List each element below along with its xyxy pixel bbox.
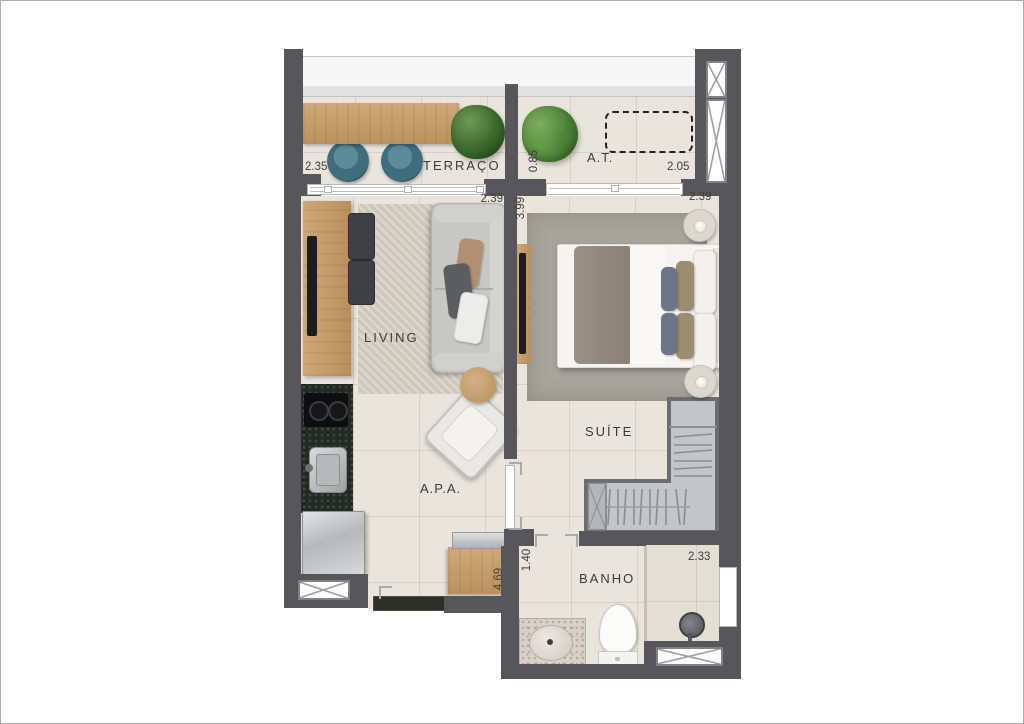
bed-pillow-blue [661, 313, 677, 355]
wall [284, 49, 303, 176]
shaft-vent-box [706, 99, 727, 183]
bed-blanket [574, 246, 630, 364]
wall [719, 194, 741, 546]
bed-pillow-blue [661, 267, 677, 311]
bed-pillow-white [693, 250, 716, 314]
dim-apa-height: 4.69 [494, 565, 506, 593]
balcony-railing-band [302, 56, 697, 87]
round-side-table [460, 367, 496, 403]
balcony-sill [302, 86, 695, 97]
dining-chair [348, 213, 375, 260]
shaft-vent-box [706, 61, 727, 98]
dim-at-height: 0.85 [529, 147, 541, 175]
shaft-vent-box [656, 647, 723, 666]
shower-window [719, 567, 737, 627]
nightstand-lamp [683, 209, 716, 242]
room-label-banho: BANHO [579, 572, 635, 585]
dim-terraco-width: 2.35 [305, 162, 327, 174]
terrace-plant-icon [451, 105, 505, 159]
nightstand-lamp [684, 365, 717, 398]
dim-suite-width: 2.39 [689, 192, 711, 204]
living-tv [307, 236, 317, 336]
bed-pillow-white [693, 313, 716, 371]
refrigerator [302, 511, 365, 575]
sink-basin [316, 454, 340, 486]
kitchen-sink [309, 447, 347, 493]
door-frame-mark [509, 462, 522, 475]
terrace-sliding-door [307, 184, 486, 195]
wall [504, 196, 517, 459]
room-label-suite: SUÍTE [585, 425, 633, 438]
suite-closet [584, 397, 721, 534]
burner [328, 401, 348, 421]
door-frame-mark [509, 517, 522, 530]
shower-drain-head [679, 612, 705, 638]
ac-condenser-dashed-outline [605, 111, 693, 153]
wall [505, 84, 518, 184]
bed-pillow-tan [676, 261, 694, 311]
dim-living-width: 2.39 [473, 194, 503, 206]
suite-window [546, 183, 683, 195]
floor-plan-canvas: TERRAÇO 2.35 A.T. 2.05 0.85 2.39 LIVING … [0, 0, 1024, 724]
dining-chair [348, 260, 375, 305]
sofa-armrest [434, 205, 504, 222]
bed-pillow-tan [676, 313, 694, 359]
room-label-apa: A.P.A. [420, 482, 461, 495]
room-label-living: LIVING [364, 331, 419, 344]
cooktop [304, 393, 348, 427]
sofa-armrest [434, 353, 504, 370]
toilet-flush-button [615, 657, 620, 661]
door-frame-mark [379, 586, 392, 599]
armchair-seat [439, 403, 500, 464]
dim-banho-height: 1.40 [522, 546, 534, 574]
terrace-stool [381, 140, 423, 182]
shower-partition [644, 546, 647, 642]
dim-suite-height: 3.99 [516, 194, 528, 222]
washer-appliance [452, 532, 506, 549]
terrace-stool [327, 140, 369, 182]
vanity-faucet [547, 639, 553, 645]
bathroom-vanity [519, 618, 586, 667]
wall [579, 531, 646, 546]
shaft-vent-box [298, 580, 350, 600]
room-label-at: A.T. [587, 151, 613, 164]
door-frame-mark [565, 534, 578, 547]
dim-banho-width: 2.33 [688, 552, 710, 564]
burner [309, 401, 329, 421]
suite-tv [519, 253, 526, 354]
wall [504, 529, 534, 546]
door-frame-mark [535, 534, 548, 547]
room-label-terraco: TERRAÇO [423, 159, 501, 172]
sink-faucet [305, 464, 313, 472]
wall [444, 596, 506, 613]
terrace-counter [303, 103, 459, 144]
wall [501, 664, 741, 679]
dim-at-width: 2.05 [667, 162, 689, 174]
wall [284, 196, 301, 579]
